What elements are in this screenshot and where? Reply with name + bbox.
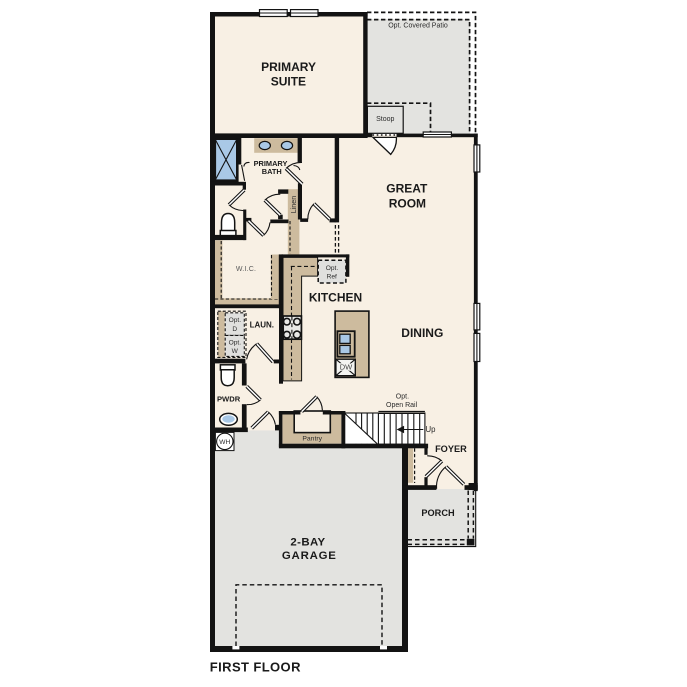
svg-text:WH: WH [219, 439, 230, 446]
svg-text:DINING: DINING [401, 326, 443, 340]
svg-text:PWDR: PWDR [217, 394, 241, 403]
svg-text:Opt.: Opt. [396, 393, 409, 400]
svg-text:PORCH: PORCH [421, 508, 455, 518]
svg-text:Open Rail: Open Rail [386, 402, 418, 409]
svg-text:Ref: Ref [327, 274, 337, 281]
svg-text:FIRST FLOOR: FIRST FLOOR [210, 660, 301, 675]
svg-text:PRIMARY: PRIMARY [261, 60, 316, 74]
svg-text:Stoop: Stoop [376, 116, 394, 123]
svg-text:LAUN.: LAUN. [250, 321, 274, 330]
svg-text:DW: DW [340, 363, 353, 372]
svg-text:KITCHEN: KITCHEN [309, 291, 362, 305]
svg-text:2-BAY: 2-BAY [290, 537, 325, 549]
svg-text:Linen: Linen [289, 196, 298, 214]
svg-text:GREAT: GREAT [386, 182, 428, 196]
svg-text:GARAGE: GARAGE [282, 550, 337, 562]
svg-text:Pantry: Pantry [302, 435, 322, 442]
svg-text:Opt.: Opt. [326, 265, 339, 272]
svg-text:SUITE: SUITE [271, 75, 306, 89]
svg-text:FOYER: FOYER [435, 444, 467, 454]
svg-text:Opt.: Opt. [229, 317, 242, 324]
svg-text:ROOM: ROOM [389, 196, 426, 210]
svg-text:Up: Up [426, 425, 437, 434]
svg-text:Opt.: Opt. [229, 339, 242, 346]
svg-text:Opt. Covered Patio: Opt. Covered Patio [388, 23, 448, 30]
svg-text:W.I.C.: W.I.C. [236, 266, 256, 273]
svg-text:D: D [232, 326, 237, 333]
svg-text:BATH: BATH [262, 167, 282, 176]
svg-text:W: W [232, 348, 239, 355]
